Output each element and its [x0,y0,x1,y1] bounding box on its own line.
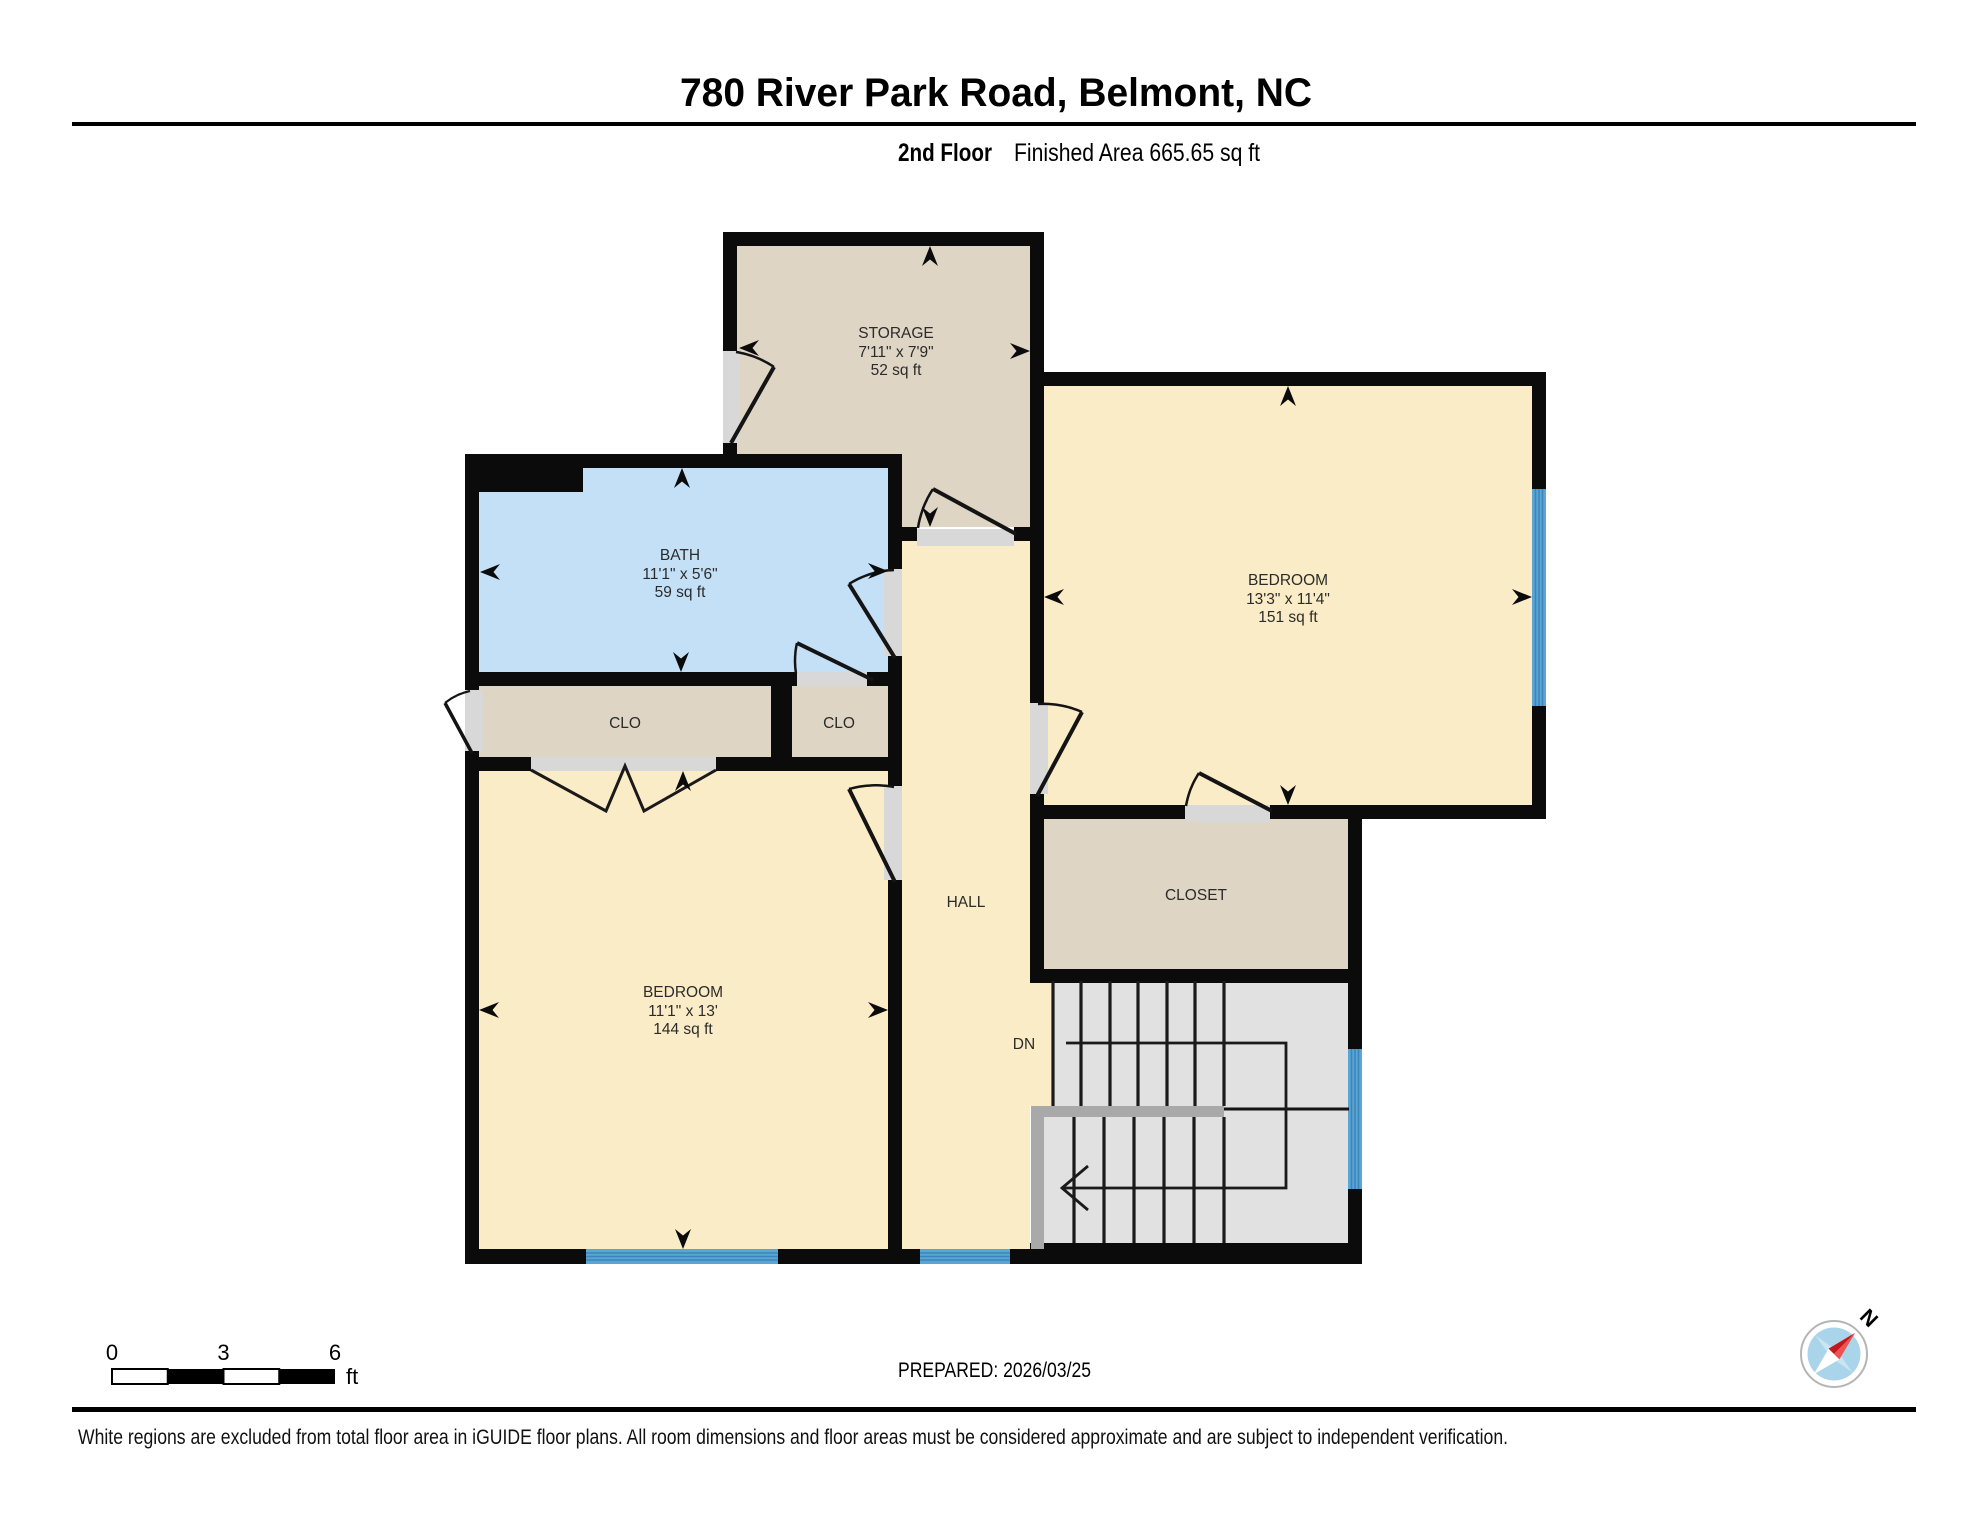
svg-text:59 sq ft: 59 sq ft [655,584,707,601]
svg-text:CLO: CLO [823,715,855,732]
svg-text:11'1" x 13': 11'1" x 13' [648,1003,718,1020]
svg-text:52 sq ft: 52 sq ft [871,362,923,379]
svg-text:PREPARED: 2026/03/25: PREPARED: 2026/03/25 [898,1359,1091,1382]
svg-text:CLO: CLO [609,715,641,732]
svg-text:6: 6 [329,1340,341,1365]
svg-text:2nd Floor: 2nd Floor [898,139,992,167]
svg-text:11'1" x 5'6": 11'1" x 5'6" [642,566,717,583]
svg-text:DN: DN [1013,1036,1035,1053]
svg-text:BATH: BATH [660,547,700,564]
svg-text:Finished Area 665.65 sq ft: Finished Area 665.65 sq ft [1014,139,1260,167]
svg-text:BEDROOM: BEDROOM [643,984,723,1001]
svg-text:ft: ft [346,1364,358,1389]
svg-text:STORAGE: STORAGE [858,325,934,342]
svg-text:7'11" x 7'9": 7'11" x 7'9" [858,344,933,361]
svg-text:BEDROOM: BEDROOM [1248,572,1328,589]
svg-text:3: 3 [217,1340,229,1365]
svg-text:144 sq ft: 144 sq ft [653,1021,713,1038]
svg-text:151 sq ft: 151 sq ft [1258,609,1318,626]
svg-text:CLOSET: CLOSET [1165,887,1228,904]
svg-text:HALL: HALL [947,894,986,911]
svg-text:780 River Park Road, Belmont,: 780 River Park Road, Belmont, NC [680,71,1312,115]
svg-text:13'3" x 11'4": 13'3" x 11'4" [1246,591,1330,608]
svg-text:0: 0 [106,1340,118,1365]
svg-text:White regions are excluded fro: White regions are excluded from total fl… [78,1426,1508,1449]
